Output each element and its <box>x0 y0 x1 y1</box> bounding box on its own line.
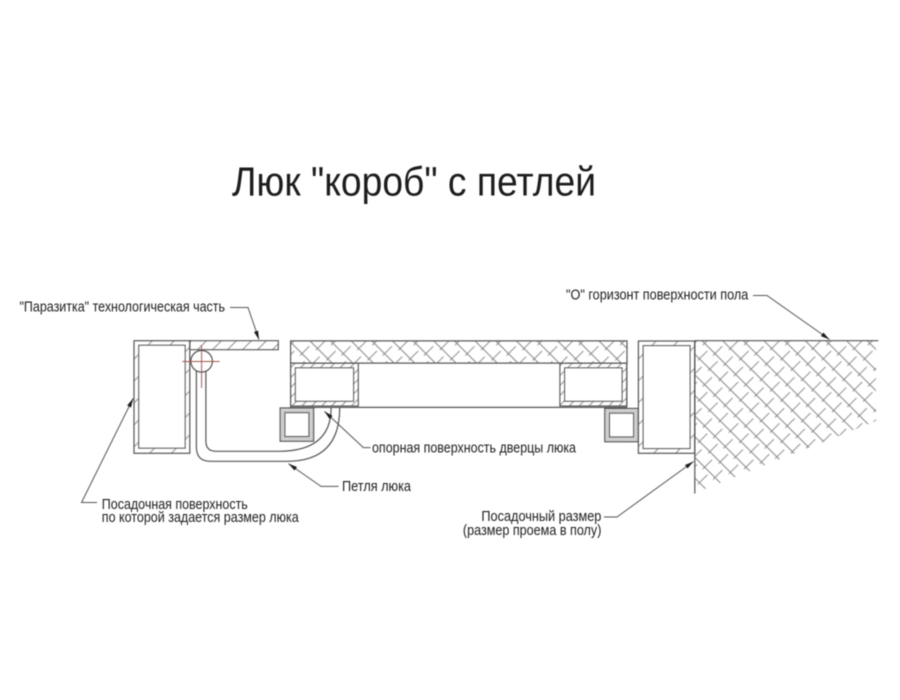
svg-text:по которой задается размер люк: по которой задается размер люка <box>102 509 299 526</box>
svg-text:Петля люка: Петля люка <box>342 478 412 495</box>
svg-text:опорная поверхность дверцы люк: опорная поверхность дверцы люка <box>372 439 577 456</box>
svg-text:"Паразитка" технологическая ча: "Паразитка" технологическая часть <box>20 298 226 315</box>
svg-text:Люк "короб" с петлей: Люк "короб" с петлей <box>232 159 596 205</box>
svg-text:"О" горизонт поверхности пола: "О" горизонт поверхности пола <box>566 287 749 304</box>
svg-text:(размер проема в полу): (размер проема в полу) <box>463 522 602 539</box>
